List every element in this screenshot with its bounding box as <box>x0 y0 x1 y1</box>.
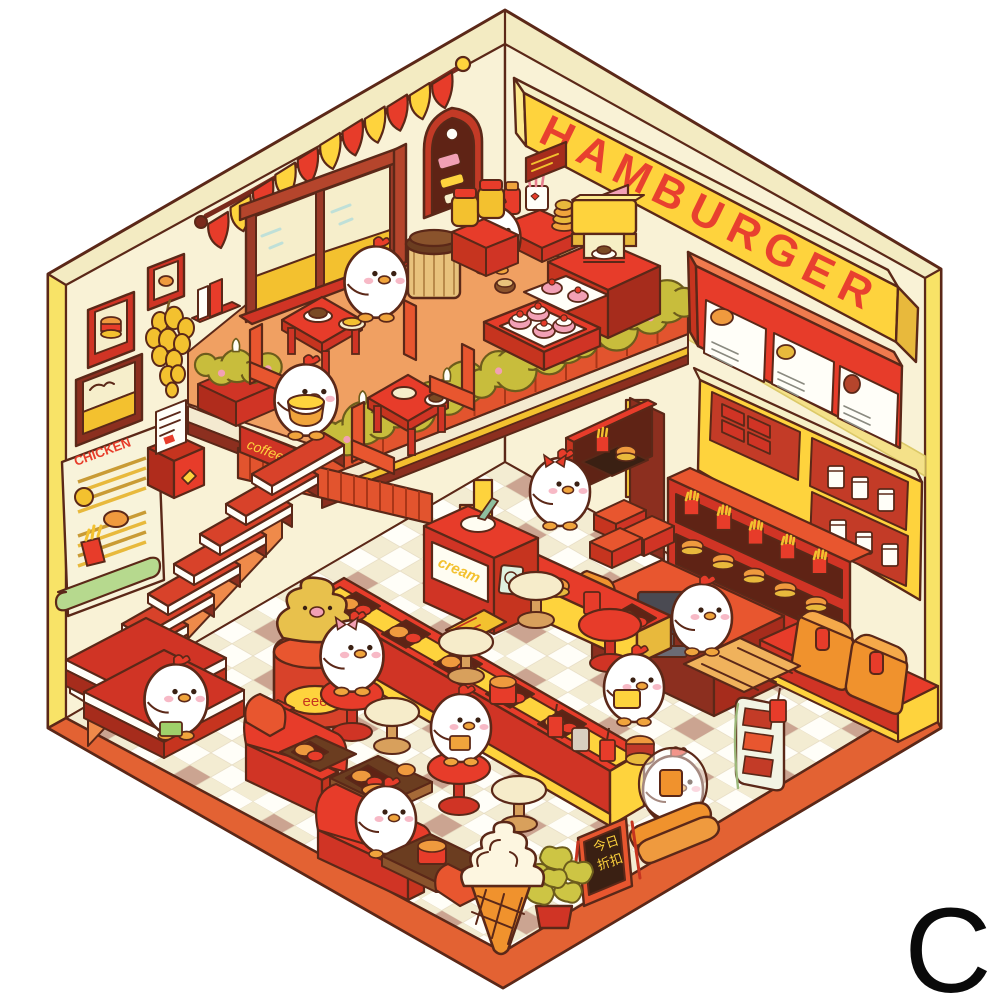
svg-text:C: C <box>904 882 991 1000</box>
